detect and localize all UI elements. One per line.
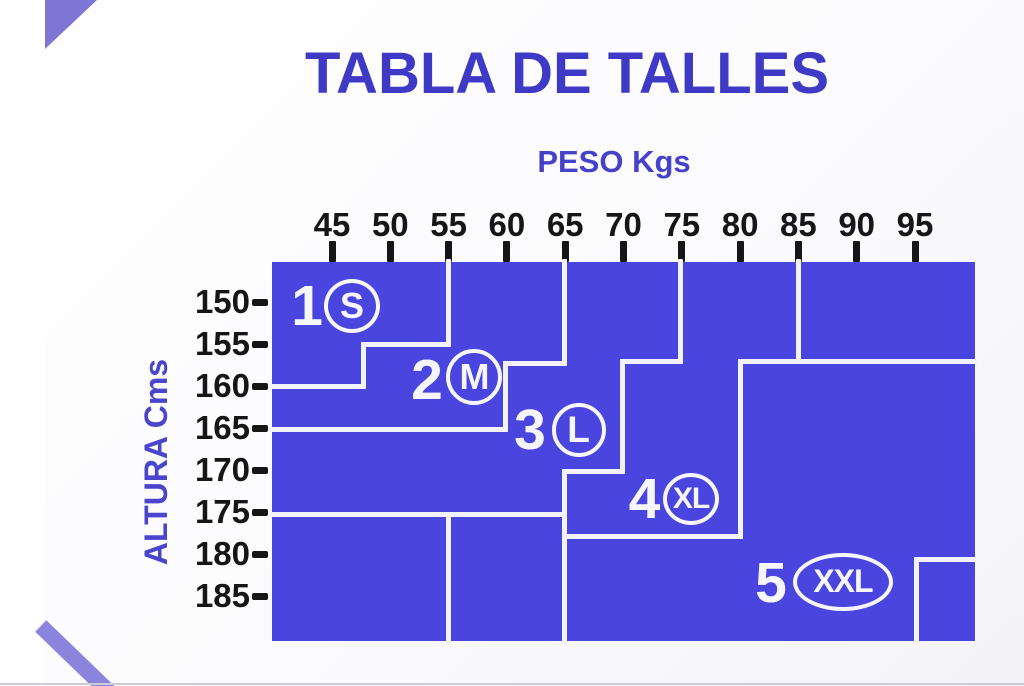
height-tick-mark	[252, 593, 268, 600]
boundary-xl-xxl	[562, 534, 743, 539]
height-tick-mark	[252, 551, 268, 558]
weight-axis-title: PESO Kgs	[533, 144, 695, 180]
boundary-s-m	[361, 342, 451, 347]
boundary-s-m	[269, 384, 366, 389]
boundary-m-l	[269, 427, 508, 432]
height-tick-mark	[252, 383, 268, 390]
height-tick-label: 150	[190, 283, 250, 321]
weight-tick-mark	[737, 241, 744, 262]
boundary-l-xl	[562, 469, 567, 644]
boundary-xl-xxl	[738, 359, 801, 364]
boundary-xl-xxl	[738, 359, 743, 539]
height-axis-title: ALTURA Cms	[138, 352, 170, 572]
size-chart-page: TABLA DE TALLES PESO Kgs ALTURA Cms 4550…	[0, 0, 1024, 686]
height-tick-mark	[252, 299, 268, 306]
weight-tick-mark	[387, 241, 394, 262]
weight-tick-mark	[912, 241, 919, 262]
height-tick-label: 160	[190, 367, 250, 405]
boundary-notch-h	[914, 557, 977, 562]
weight-tick-label: 85	[768, 206, 828, 244]
height-tick-mark	[252, 425, 268, 432]
weight-tick-label: 95	[885, 206, 945, 244]
weight-tick-mark	[853, 241, 860, 262]
height-tick-label: 165	[190, 409, 250, 447]
height-tick-label: 180	[190, 535, 250, 573]
weight-tick-label: 80	[710, 206, 770, 244]
left-white-strip	[0, 0, 45, 686]
weight-tick-mark	[329, 241, 336, 262]
size-3-l-badge: L	[552, 403, 606, 457]
weight-tick-label: 60	[477, 206, 537, 244]
boundary-l-xl	[620, 359, 625, 474]
weight-tick-label: 70	[594, 206, 654, 244]
height-tick-mark	[252, 341, 268, 348]
boundary-notch-v	[914, 557, 919, 644]
boundary-m-l	[562, 259, 567, 366]
boundary-xl-xxl	[796, 259, 801, 364]
weight-tick-label: 55	[419, 206, 479, 244]
weight-tick-label: 45	[302, 206, 362, 244]
weight-tick-label: 75	[652, 206, 712, 244]
height-tick-label: 155	[190, 325, 250, 363]
size-5-xxl-badge: XXL	[793, 553, 893, 611]
boundary-m-l	[503, 361, 566, 366]
height-tick-label: 170	[190, 451, 250, 489]
boundary-l-xl	[620, 359, 683, 364]
height-tick-label: 185	[190, 577, 250, 615]
bottom-left-corner-accent	[35, 620, 117, 686]
top-left-corner-accent	[45, 0, 97, 49]
boundary-low-left-h	[269, 512, 566, 517]
bottom-divider	[0, 683, 1024, 685]
size-1-s-badge: S	[324, 279, 380, 333]
height-tick-mark	[252, 467, 268, 474]
weight-tick-label: 65	[535, 206, 595, 244]
boundary-s-m	[446, 259, 451, 347]
weight-tick-label: 50	[360, 206, 420, 244]
weight-tick-mark	[503, 241, 510, 262]
page-title: TABLA DE TALLES	[262, 40, 872, 107]
boundary-s-m	[361, 342, 366, 388]
boundary-low-left-v	[446, 512, 451, 644]
boundary-l-xl	[678, 259, 683, 364]
size-4-xl-badge: XL	[663, 473, 719, 525]
boundary-xxl-top	[796, 359, 977, 364]
height-tick-mark	[252, 509, 268, 516]
weight-tick-mark	[620, 241, 627, 262]
weight-tick-label: 90	[827, 206, 887, 244]
height-tick-label: 175	[190, 493, 250, 531]
